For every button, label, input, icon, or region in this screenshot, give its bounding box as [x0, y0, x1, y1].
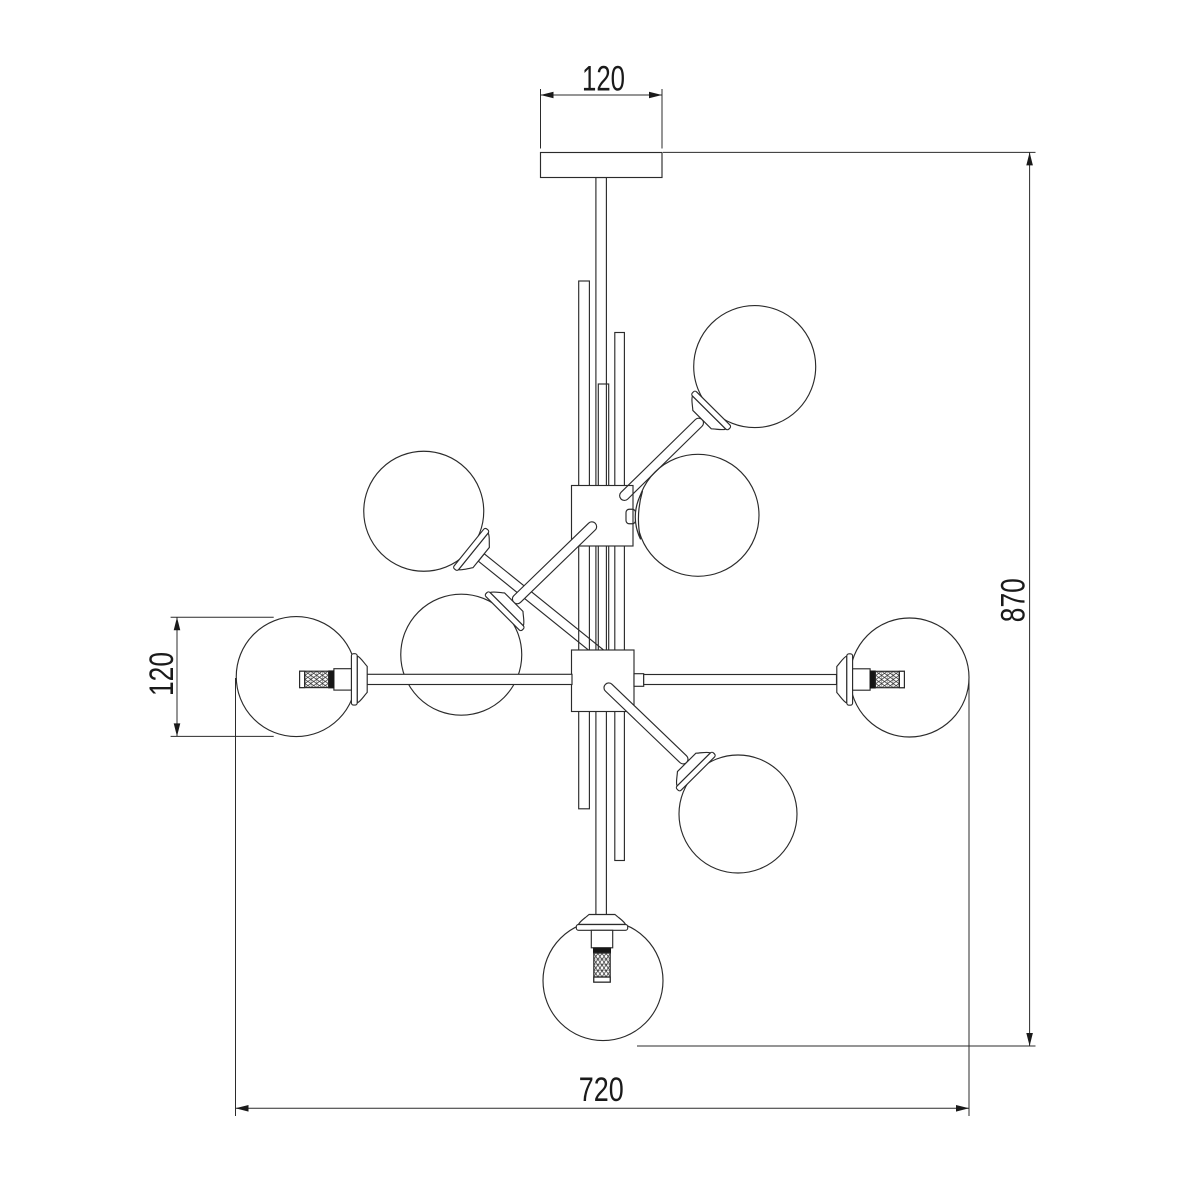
svg-text:870: 870 — [995, 578, 1033, 622]
svg-text:120: 120 — [143, 652, 181, 696]
svg-text:720: 720 — [579, 1071, 624, 1109]
svg-text:120: 120 — [582, 60, 625, 99]
